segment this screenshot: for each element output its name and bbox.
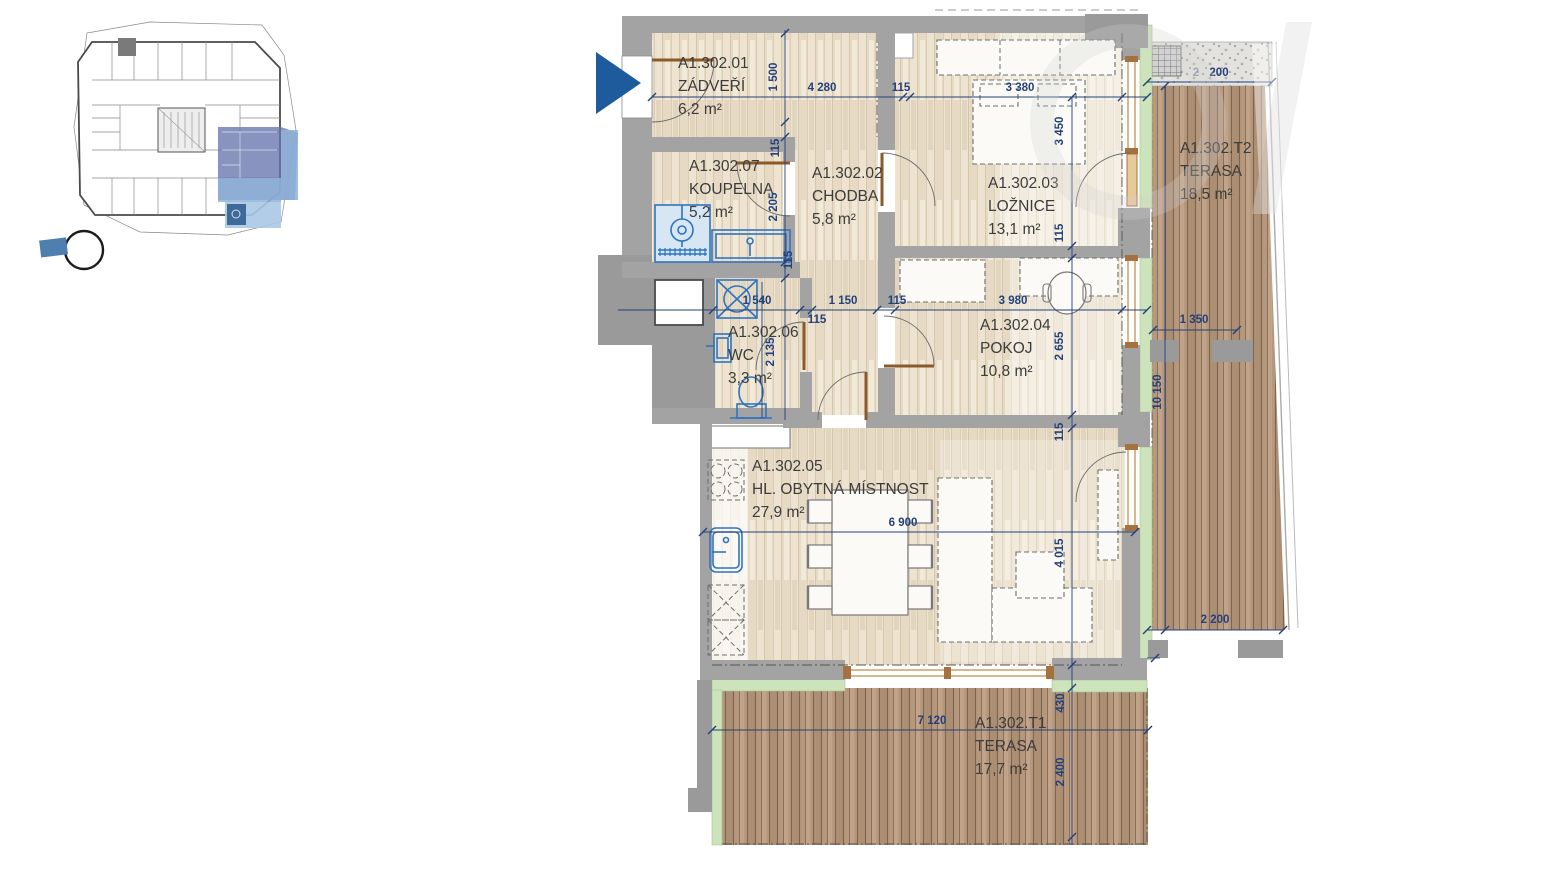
room-area: 13,1 m² <box>988 221 1041 238</box>
dim-room-width: 3 980 <box>999 295 1028 307</box>
dim-t1-depth: 2 400 <box>1055 758 1067 787</box>
room-code: A1.302.05 <box>752 458 823 475</box>
dim-wc-depth: 2 135 <box>765 337 777 366</box>
key-plan-shaft-square <box>118 38 136 56</box>
dim-living-width: 6 900 <box>889 517 918 529</box>
terrace-stub <box>1212 340 1253 362</box>
dim-room-depth: 2 655 <box>1054 331 1066 360</box>
wall-bottom-left <box>700 660 845 680</box>
north-indicator <box>39 231 103 269</box>
wall-t1-left <box>697 680 712 790</box>
terrace-stub <box>1150 340 1178 362</box>
window-niche <box>708 426 790 448</box>
dining-table <box>832 490 908 615</box>
room-area: 27,9 m² <box>752 504 805 521</box>
room-name: TERASA <box>975 738 1038 755</box>
room-name: WC <box>728 347 754 364</box>
key-plan <box>39 22 298 269</box>
dim-hall-width: 4 280 <box>808 82 837 94</box>
room-name: KOUPELNA <box>689 181 774 198</box>
room-code: A1.302.04 <box>980 317 1051 334</box>
wall-right <box>1122 528 1140 680</box>
wall-corridor-room <box>878 212 895 308</box>
wall-room-living <box>895 415 1140 428</box>
wall-bedroom-room <box>895 246 1150 258</box>
floor-plan-drawing: 4 280 115 3 380 1 500 115 2 205 115 2 13… <box>0 0 1567 895</box>
floor-plan-sheet: 4 280 115 3 380 1 500 115 2 205 115 2 13… <box>0 0 1567 895</box>
room-name: ZÁDVEŘÍ <box>678 78 746 95</box>
wall-bath-wc <box>622 262 800 278</box>
terrace-t1 <box>722 688 1148 845</box>
wall-niche-top <box>893 33 913 58</box>
room-code: A1.302.07 <box>689 158 760 175</box>
wall-right <box>1122 345 1140 412</box>
dim-wc-width: 1 540 <box>743 295 772 307</box>
terrace-stub <box>1238 640 1283 658</box>
wall-bottom-right <box>1052 658 1147 680</box>
wall-corridor-room <box>878 368 895 415</box>
room-code: A1.302.T1 <box>975 715 1047 732</box>
room-area: 5,8 m² <box>812 211 856 228</box>
dim-wall-115-wc: 115 <box>808 314 827 326</box>
room-area: 17,7 m² <box>975 761 1028 778</box>
wall-corridor-living <box>866 412 895 428</box>
dim-t2-length: 10 150 <box>1152 374 1164 409</box>
room-area: 6,2 m² <box>678 101 722 118</box>
room-code: A1.302.02 <box>812 165 883 182</box>
room-area: 5,2 m² <box>689 204 733 221</box>
room-name: POKOJ <box>980 340 1033 357</box>
living-terrace-door <box>1125 444 1138 531</box>
dim-wall-115-room: 115 <box>1054 422 1066 441</box>
shaft <box>655 280 703 325</box>
living-sliding-window <box>843 666 1054 679</box>
dim-corridor-width: 1 150 <box>829 295 858 307</box>
dim-t1-width: 7 120 <box>918 715 947 727</box>
room-code: A1.302.01 <box>678 55 749 72</box>
dim-t2-width-bottom: 2 200 <box>1201 614 1230 626</box>
room-name: CHODBA <box>812 188 879 205</box>
dim-wall-115-entry: 115 <box>770 138 782 157</box>
dim-t2-door: 1 350 <box>1180 314 1209 326</box>
wall-top <box>645 16 1142 33</box>
key-plan-core <box>158 108 205 152</box>
wall-t1-foot <box>688 788 712 812</box>
terrace-t1-deck <box>722 688 1148 845</box>
wardrobe-room <box>900 260 985 302</box>
wall-corridor-living <box>783 412 822 428</box>
dim-t1-offset: 430 <box>1055 693 1067 712</box>
dim-entry-depth: 1 500 <box>768 63 780 92</box>
dim-wall-115-top: 115 <box>892 82 911 94</box>
wall-right-stub <box>1118 412 1150 447</box>
room-name: LOŽNICE <box>988 198 1055 215</box>
room-code: A1.302.06 <box>728 324 799 341</box>
wall-wc-corridor <box>800 372 812 408</box>
dim-wall-115-corr: 115 <box>888 295 907 307</box>
wall-left <box>622 16 652 56</box>
room-area: 3,3 m² <box>728 370 772 387</box>
room-window <box>1125 255 1138 348</box>
dim-wall-115-bath: 115 <box>783 250 795 269</box>
room-area: 10,8 m² <box>980 363 1033 380</box>
dim-wall-115-bed: 115 <box>1054 223 1066 242</box>
room-name: HL. OBYTNÁ MÍSTNOST <box>752 481 929 498</box>
bedroom-window <box>1125 56 1138 206</box>
dim-bedroom-width: 3 380 <box>1006 82 1035 94</box>
dim-living-depth: 4 015 <box>1054 538 1066 567</box>
key-plan-highlighted-unit <box>218 127 298 228</box>
